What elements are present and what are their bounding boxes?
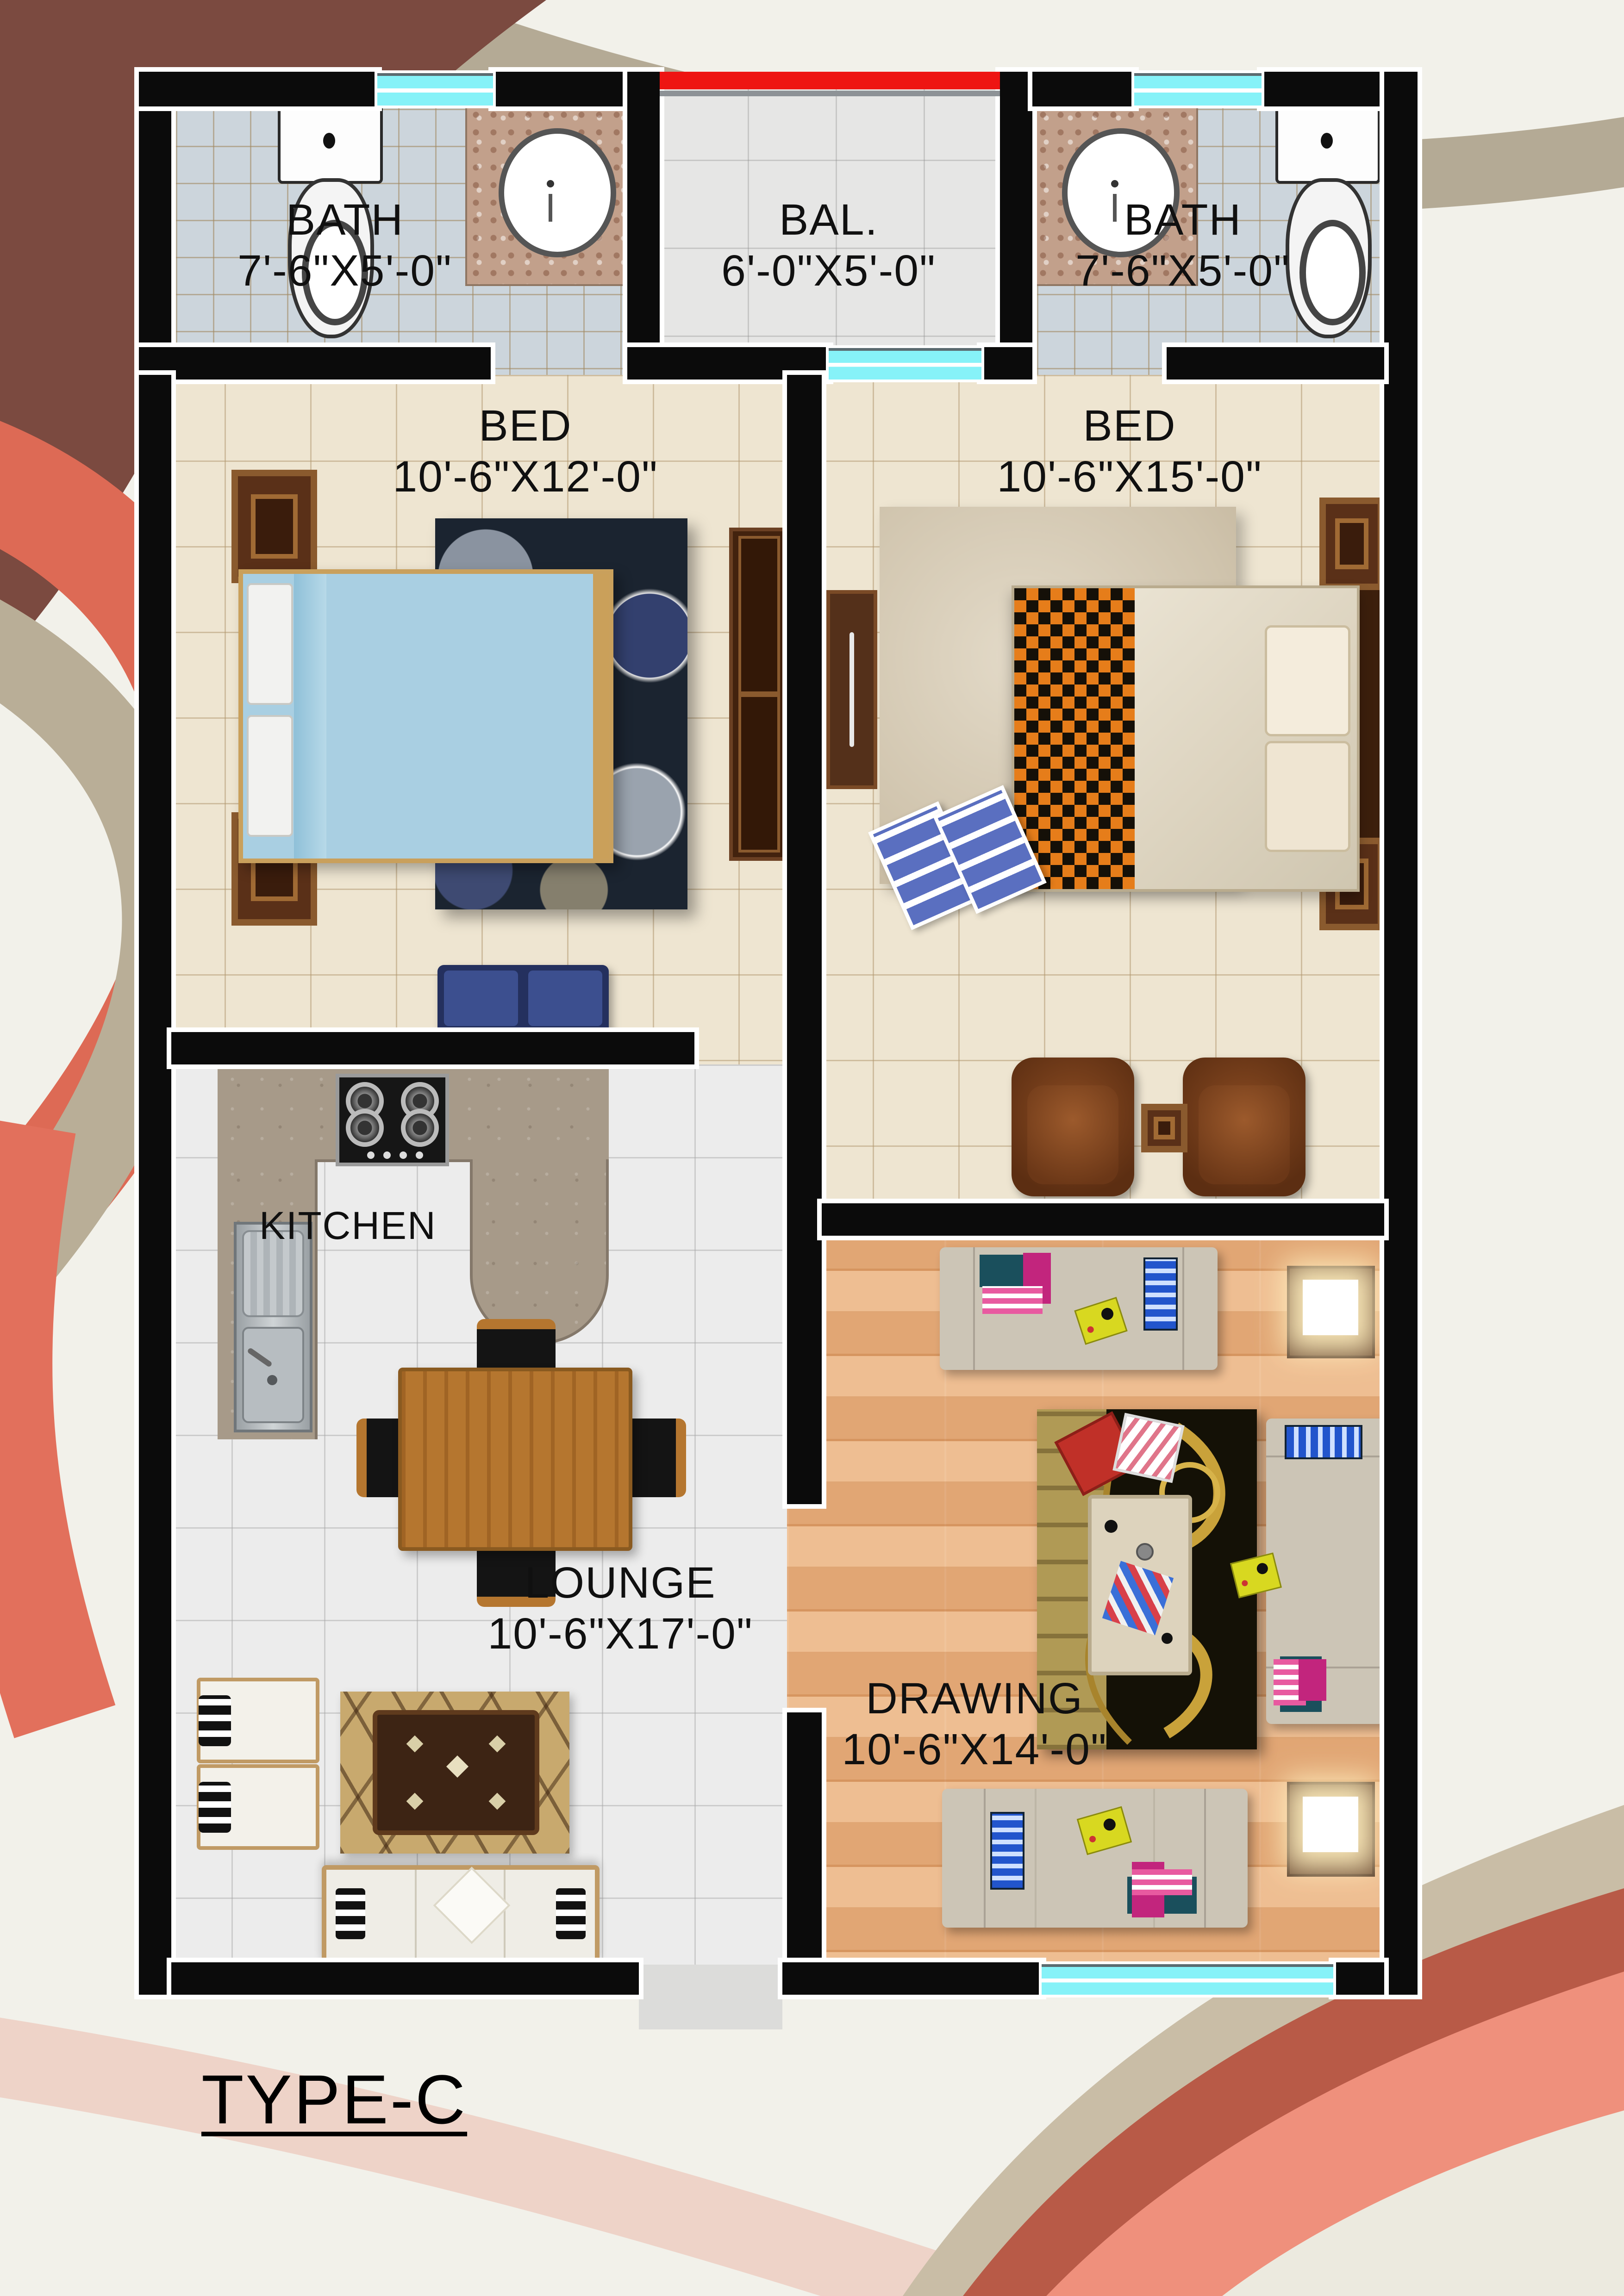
room-dims: 10'-6"X17'-0" [458, 1608, 782, 1659]
lounge-sofa [322, 1865, 600, 1965]
dresser-bed-right [826, 590, 877, 789]
drawing-sofa-bottom [942, 1789, 1248, 1928]
room-label-lounge: LOUNGE 10'-6"X17'-0" [458, 1557, 782, 1659]
room-name: KITCHEN [259, 1203, 518, 1248]
room-dims: 7'-6"X5'-0" [1021, 245, 1345, 296]
bed-right [1012, 585, 1360, 892]
room-name: LOUNGE [458, 1557, 782, 1608]
nightstand-bed-right-top [1319, 498, 1384, 590]
room-dims: 10'-6"X12'-0" [363, 451, 687, 502]
room-label-bed-left: BED 10'-6"X12'-0" [363, 400, 687, 502]
wall [1384, 72, 1418, 1995]
room-name: BED [968, 400, 1292, 451]
bed-left [238, 569, 613, 863]
nightstand-bed-left-top [231, 470, 317, 583]
wall [139, 347, 491, 380]
room-dims: 6'-0"X5'-0" [667, 245, 991, 296]
kitchen-counter-right [470, 1159, 609, 1344]
room-label-balcony: BAL. 6'-0"X5'-0" [667, 194, 991, 296]
drawing-side-table-top [1287, 1266, 1375, 1358]
lounge-armchair-2 [197, 1764, 319, 1850]
wall [1262, 72, 1384, 106]
wall [1333, 1962, 1384, 1995]
drawing-sofa-right [1266, 1419, 1384, 1724]
wall [139, 375, 171, 1995]
window-balcony-door [829, 348, 981, 380]
wall [139, 72, 377, 106]
wall [171, 1032, 694, 1064]
window-bath-right [1134, 73, 1262, 106]
lounge-armchair-1 [197, 1678, 319, 1763]
room-dims: 10'-6"X15'-0" [968, 451, 1292, 502]
wall [981, 347, 1032, 380]
room-name: BATH [1021, 194, 1345, 245]
balcony-railing-line [660, 91, 1000, 96]
drawing-side-table-bottom [1287, 1782, 1375, 1877]
wall [1032, 72, 1134, 106]
kitchen-sink [234, 1222, 312, 1432]
room-label-bed-right: BED 10'-6"X15'-0" [968, 400, 1292, 502]
dining-table [398, 1368, 632, 1551]
wall [171, 1962, 639, 1995]
window-drawing [1042, 1964, 1333, 1995]
drawing-sofa-top [940, 1247, 1218, 1370]
armchair-bed-right-1 [1012, 1058, 1134, 1196]
room-dims: 10'-6"X14'-0" [812, 1724, 1137, 1775]
drawing-coffee-table [1088, 1495, 1192, 1675]
side-table-bed-right [1141, 1104, 1187, 1152]
room-label-bath-right: BATH 7'-6"X5'-0" [1021, 194, 1345, 296]
wardrobe-bed-left [729, 528, 789, 861]
floorplan-page: BATH 7'-6"X5'-0" BAL. 6'-0"X5'-0" BATH 7… [0, 0, 1624, 2296]
room-dims: 7'-6"X5'-0" [183, 245, 507, 296]
wall [627, 72, 660, 377]
room-label-bath-left: BATH 7'-6"X5'-0" [183, 194, 507, 296]
tv-cabinet [373, 1710, 539, 1835]
wall [1167, 347, 1384, 380]
room-name: BATH [183, 194, 507, 245]
room-name: BAL. [667, 194, 991, 245]
armchair-bed-right-2 [1183, 1058, 1305, 1196]
room-name: DRAWING [812, 1673, 1137, 1724]
entrance-step [639, 1965, 782, 2029]
room-label-kitchen: KITCHEN [259, 1203, 518, 1248]
stove [336, 1074, 449, 1166]
room-name: BED [363, 400, 687, 451]
room-label-drawing: DRAWING 10'-6"X14'-0" [812, 1673, 1137, 1775]
window-bath-left [377, 73, 493, 106]
wall [139, 72, 171, 377]
plan-title: TYPE-C [201, 2060, 467, 2140]
wall [782, 1962, 1042, 1995]
wall [787, 375, 822, 1504]
wall [493, 72, 627, 106]
wall [822, 1203, 1384, 1236]
balcony-railing [660, 72, 1000, 89]
